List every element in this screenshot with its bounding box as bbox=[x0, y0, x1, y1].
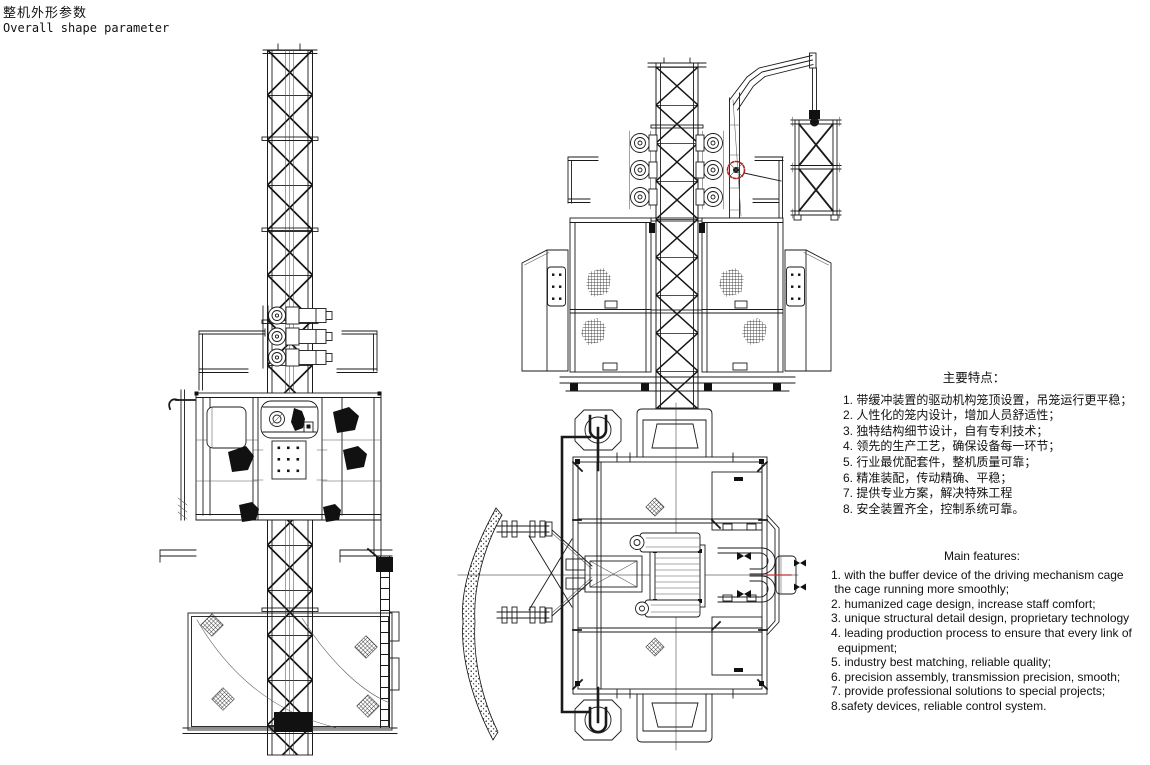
side-elevation-view bbox=[160, 44, 399, 755]
feature-line-en: 5. industry best matching, reliable qual… bbox=[831, 655, 1150, 670]
cabinet bbox=[207, 407, 246, 448]
drive-units bbox=[263, 306, 332, 368]
plan-view bbox=[458, 403, 806, 750]
mast-foot bbox=[274, 712, 312, 732]
wall-tie bbox=[462, 508, 642, 740]
jib-crane bbox=[728, 53, 821, 218]
feature-line-en: 8.safety devices, reliable control syste… bbox=[831, 699, 1150, 714]
feature-item-zh: 8. 安全装置齐全，控制系统可靠。 bbox=[843, 502, 1150, 518]
twin-cage-front-view bbox=[522, 53, 841, 408]
left-cage bbox=[570, 218, 651, 372]
feature-item-zh: 3. 独特结构细节设计，自有专利技术； bbox=[843, 424, 1150, 440]
right-cage bbox=[702, 218, 783, 372]
feature-line-en: 2. humanized cage design, increase staff… bbox=[831, 597, 1150, 612]
left-counterweight bbox=[522, 250, 568, 371]
feature-item-zh: 4. 领先的生产工艺，确保设备每一环节； bbox=[843, 439, 1150, 455]
feature-item-zh: 7. 提供专业方案，解决特殊工程 bbox=[843, 486, 1150, 502]
feature-line-en: 7. provide professional solutions to spe… bbox=[831, 684, 1150, 699]
mast-lattice bbox=[648, 58, 706, 408]
feature-line-en: 6. precision assembly, transmission prec… bbox=[831, 670, 1150, 685]
features-chinese: 主要特点： 1. 带缓冲装置的驱动机构笼顶设置，吊笼运行更平稳； 2. 人性化的… bbox=[843, 371, 1150, 529]
feature-line-en: 4. leading production process to ensure … bbox=[831, 626, 1150, 641]
wall-section bbox=[462, 508, 502, 740]
feature-line-en: 3. unique structural detail design, prop… bbox=[831, 611, 1150, 626]
features-zh-heading: 主要特点： bbox=[843, 371, 1105, 387]
features-en-heading: Main features: bbox=[831, 549, 1133, 564]
page: 整机外形参数 Overall shape parameter bbox=[0, 0, 1150, 765]
features-english: Main features: 1. with the buffer device… bbox=[831, 549, 1150, 717]
feature-item-zh: 2. 人性化的笼内设计，增加人员舒适性； bbox=[843, 408, 1150, 424]
feature-line-en: equipment; bbox=[831, 641, 1150, 656]
hanging-mast-section bbox=[791, 117, 841, 220]
right-counterweight bbox=[785, 250, 831, 371]
left-door-post bbox=[178, 390, 187, 520]
feature-line-en: the cage running more smoothly; bbox=[831, 582, 1150, 597]
feature-item-zh: 5. 行业最优配套件，整机质量可靠； bbox=[843, 455, 1150, 471]
feature-line-en: 1. with the buffer device of the driving… bbox=[831, 568, 1150, 583]
feature-item-zh: 6. 精准装配，传动精确、平稳； bbox=[843, 471, 1150, 487]
feature-item-zh: 1. 带缓冲装置的驱动机构笼顶设置，吊笼运行更平稳； bbox=[843, 393, 1150, 409]
